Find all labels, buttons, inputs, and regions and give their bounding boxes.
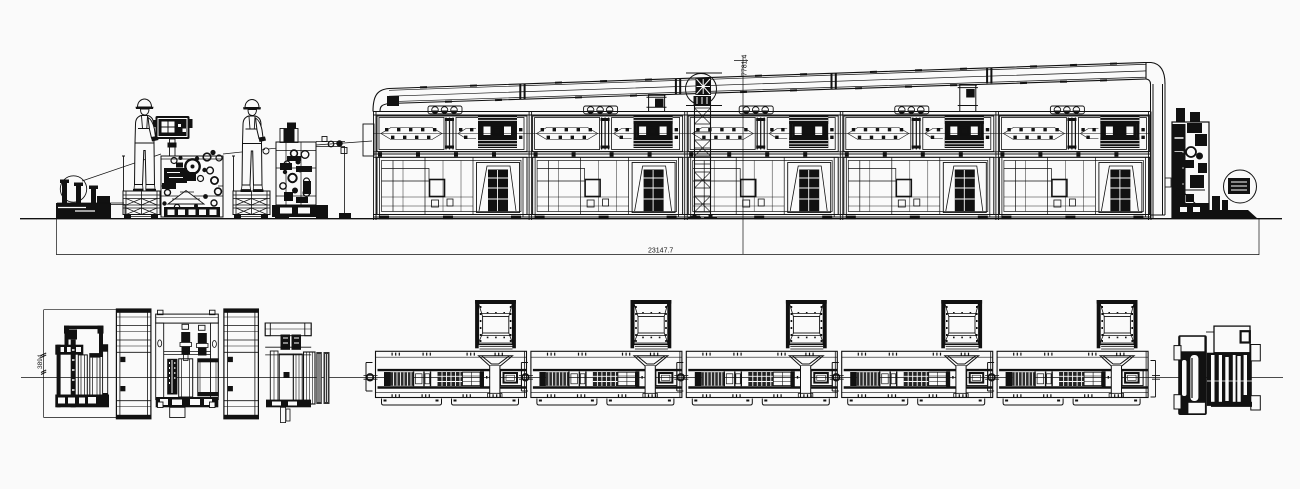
svg-text:3894: 3894	[37, 354, 44, 369]
svg-text:7781.4: 7781.4	[742, 54, 749, 76]
svg-text:23147.7: 23147.7	[648, 248, 673, 255]
